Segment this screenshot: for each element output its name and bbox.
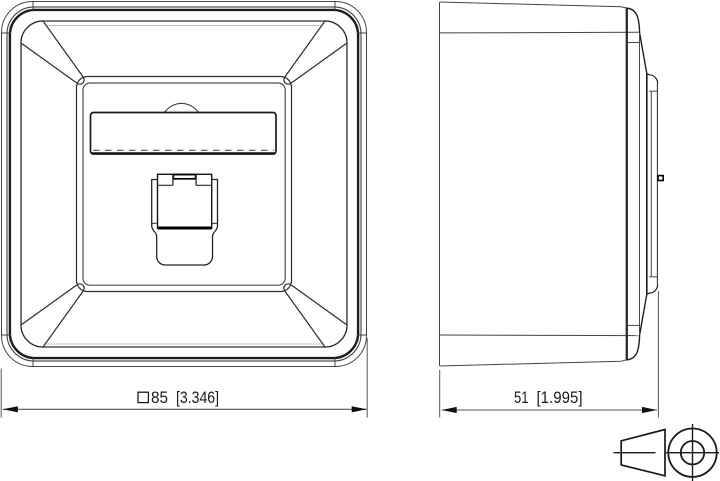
svg-text:51: 51	[514, 389, 529, 407]
svg-text:[3.346]: [3.346]	[176, 389, 219, 407]
svg-text:[1.995]: [1.995]	[537, 389, 583, 407]
svg-text:85: 85	[151, 389, 168, 407]
